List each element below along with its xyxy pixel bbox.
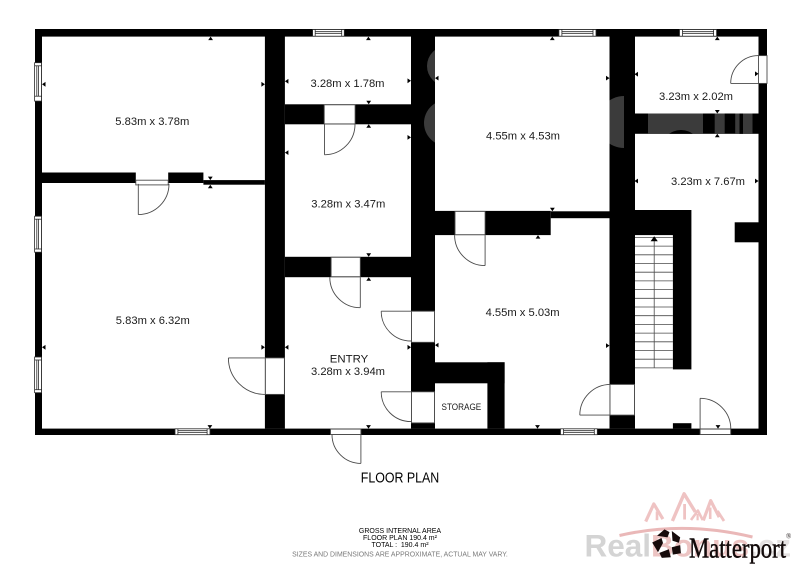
- svg-text:3.28m x 3.94m: 3.28m x 3.94m: [311, 366, 385, 378]
- svg-text:ENTRY: ENTRY: [330, 354, 369, 366]
- svg-text:SIZES AND DIMENSIONS ARE APPRO: SIZES AND DIMENSIONS ARE APPROXIMATE, AC…: [292, 551, 508, 558]
- svg-text:3.28m x 1.78m: 3.28m x 1.78m: [311, 78, 385, 90]
- svg-text:GROSS INTERNAL AREA: GROSS INTERNAL AREA: [359, 528, 442, 535]
- svg-text:3.23m x 2.02m: 3.23m x 2.02m: [659, 91, 733, 103]
- svg-text:3.23m x 7.67m: 3.23m x 7.67m: [671, 176, 745, 188]
- svg-text:4.55m x 4.53m: 4.55m x 4.53m: [486, 131, 560, 143]
- svg-text:FLOOR PLAN 190.4 m²: FLOOR PLAN 190.4 m²: [363, 535, 438, 542]
- svg-text:FLOOR PLAN: FLOOR PLAN: [361, 470, 440, 486]
- svg-text:4.55m x 5.03m: 4.55m x 5.03m: [486, 307, 560, 319]
- svg-text:5.83m x 6.32m: 5.83m x 6.32m: [116, 315, 190, 327]
- svg-text:Matterport: Matterport: [689, 533, 786, 565]
- svg-text:TOTAL : 190.4 m²: TOTAL : 190.4 m²: [371, 542, 429, 549]
- svg-text:®: ®: [786, 533, 792, 541]
- svg-text:5.83m x 3.78m: 5.83m x 3.78m: [115, 116, 189, 128]
- svg-text:3.28m x 3.47m: 3.28m x 3.47m: [311, 199, 385, 211]
- svg-text:STORAGE: STORAGE: [442, 402, 482, 412]
